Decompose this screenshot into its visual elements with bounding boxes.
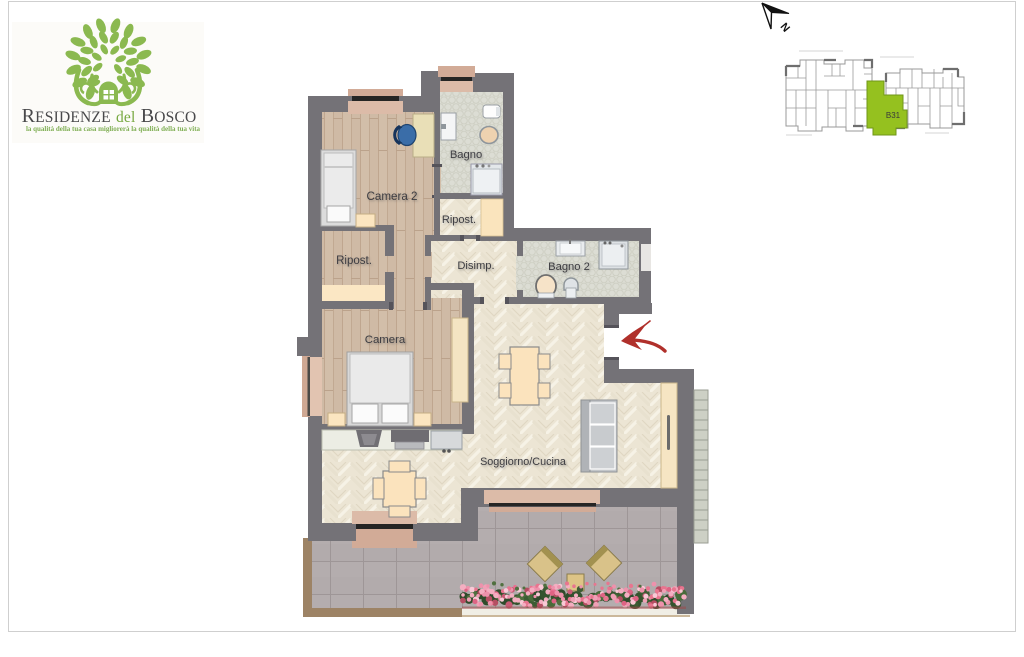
svg-text:Bagno: Bagno — [450, 149, 482, 161]
svg-text:Ripost.: Ripost. — [336, 255, 372, 267]
svg-text:Camera 2: Camera 2 — [367, 190, 418, 203]
svg-text:Bagno 2: Bagno 2 — [548, 261, 590, 273]
svg-text:B31: B31 — [886, 111, 901, 120]
svg-text:Ripost.: Ripost. — [442, 214, 476, 226]
svg-text:Soggiorno/Cucina: Soggiorno/Cucina — [480, 456, 566, 468]
svg-text:la qualità della tua casa migl: la qualità della tua casa migliorerà la … — [26, 125, 201, 133]
svg-text:N: N — [778, 21, 792, 35]
svg-text:Disimp.: Disimp. — [457, 260, 494, 272]
svg-text:Camera: Camera — [365, 334, 406, 346]
svg-text:RESIDENZE del BOSCO: RESIDENZE del BOSCO — [22, 105, 197, 127]
